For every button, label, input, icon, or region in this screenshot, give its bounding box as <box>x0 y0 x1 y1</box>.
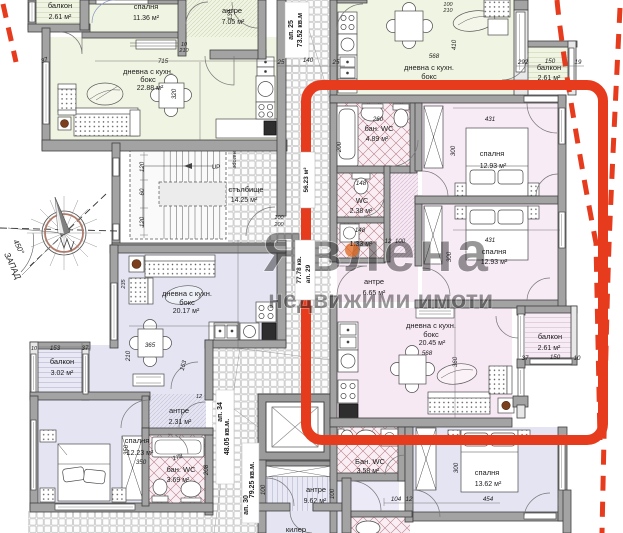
svg-text:56.23 м²: 56.23 м² <box>303 167 310 193</box>
svg-text:2.38 м²: 2.38 м² <box>350 208 373 215</box>
svg-text:148: 148 <box>355 227 366 234</box>
svg-text:11.36 м²: 11.36 м² <box>133 15 160 22</box>
svg-text:200: 200 <box>336 141 343 153</box>
svg-text:12: 12 <box>385 238 392 245</box>
svg-text:12.93 м²: 12.93 м² <box>480 163 507 170</box>
svg-text:120: 120 <box>139 216 146 227</box>
svg-text:22.88 м²: 22.88 м² <box>137 85 164 92</box>
svg-text:350: 350 <box>136 459 147 466</box>
svg-text:2.61 м²: 2.61 м² <box>538 345 561 352</box>
svg-text:спалня: спалня <box>125 436 150 445</box>
svg-text:антре: антре <box>169 406 189 415</box>
svg-text:3.02 м²: 3.02 м² <box>51 370 74 377</box>
svg-text:WC: WC <box>356 196 369 205</box>
svg-text:300: 300 <box>453 462 460 473</box>
svg-text:2.61 м²: 2.61 м² <box>538 75 561 82</box>
svg-text:3.69 м²: 3.69 м² <box>167 477 190 484</box>
svg-text:10: 10 <box>31 346 38 352</box>
svg-text:210: 210 <box>442 8 453 14</box>
svg-text:210: 210 <box>125 350 132 362</box>
svg-text:бокс: бокс <box>179 298 195 307</box>
svg-text:спалня: спалня <box>475 468 500 477</box>
svg-text:360: 360 <box>452 356 459 367</box>
svg-text:365: 365 <box>145 342 156 349</box>
svg-text:2.31 м²: 2.31 м² <box>169 419 192 426</box>
svg-text:100: 100 <box>329 488 336 499</box>
svg-text:431: 431 <box>485 116 495 123</box>
svg-text:568: 568 <box>429 53 440 60</box>
svg-text:25: 25 <box>277 59 285 66</box>
svg-text:100: 100 <box>395 238 406 245</box>
svg-text:73.52 кв.м: 73.52 кв.м <box>297 13 304 47</box>
svg-text:37: 37 <box>82 345 89 352</box>
svg-text:153: 153 <box>50 345 61 352</box>
svg-text:37: 37 <box>522 355 529 362</box>
svg-text:13.62 м²: 13.62 м² <box>475 481 502 488</box>
svg-text:2.61 м²: 2.61 м² <box>49 14 72 21</box>
svg-text:дневна с кухн.: дневна с кухн. <box>162 289 212 298</box>
svg-text:12: 12 <box>406 496 413 503</box>
svg-text:ап. 25: ап. 25 <box>288 20 295 40</box>
svg-text:260: 260 <box>372 116 384 123</box>
svg-text:10: 10 <box>574 355 581 362</box>
svg-text:19: 19 <box>575 59 582 66</box>
svg-text:9.62 м²: 9.62 м² <box>304 498 327 505</box>
svg-text:300: 300 <box>446 251 453 262</box>
svg-text:454: 454 <box>483 496 494 503</box>
svg-text:20.45 м²: 20.45 м² <box>419 340 446 347</box>
svg-text:спалня: спалня <box>482 247 507 256</box>
svg-text:150: 150 <box>550 354 561 361</box>
svg-text:14.25 м²: 14.25 м² <box>231 197 258 204</box>
svg-text:48.05 кв.м.: 48.05 кв.м. <box>224 419 231 455</box>
svg-text:104: 104 <box>391 496 402 503</box>
svg-text:100: 100 <box>260 484 267 495</box>
svg-text:715: 715 <box>158 58 169 65</box>
svg-text:350: 350 <box>123 444 130 455</box>
svg-text:25: 25 <box>332 59 340 66</box>
svg-text:410: 410 <box>451 39 458 50</box>
svg-text:бан. WC: бан. WC <box>166 465 196 474</box>
svg-text:балкон: балкон <box>538 332 562 341</box>
svg-text:568: 568 <box>422 350 433 357</box>
svg-text:1.33 м²: 1.33 м² <box>350 241 373 248</box>
svg-text:Бан. WC: Бан. WC <box>355 457 385 466</box>
svg-text:79.25 кв.м.: 79.25 кв.м. <box>249 462 256 498</box>
svg-text:3.58 м²: 3.58 м² <box>357 468 380 475</box>
svg-text:20.17 м²: 20.17 м² <box>173 308 200 315</box>
svg-text:148: 148 <box>356 180 367 187</box>
svg-text:4.89 м²: 4.89 м² <box>366 136 389 143</box>
svg-text:балкон: балкон <box>50 357 74 366</box>
svg-text:антре: антре <box>306 485 326 494</box>
svg-text:120: 120 <box>139 161 146 172</box>
svg-text:дневна с кухн.: дневна с кухн. <box>406 321 456 330</box>
svg-text:дневна с кухн.: дневна с кухн. <box>404 63 454 72</box>
svg-text:12.23 м²: 12.23 м² <box>127 450 154 457</box>
svg-text:бокс: бокс <box>140 75 156 84</box>
svg-text:стълбище: стълбище <box>229 185 264 194</box>
svg-text:UP: UP <box>212 165 220 171</box>
svg-text:килер: килер <box>286 525 306 533</box>
svg-text:200: 200 <box>273 222 284 228</box>
svg-text:6.65 м²: 6.65 м² <box>363 290 386 297</box>
svg-text:140: 140 <box>303 57 314 64</box>
svg-text:бокс: бокс <box>421 72 437 81</box>
svg-text:12.93 м²: 12.93 м² <box>481 259 508 266</box>
svg-text:бан. WC: бан. WC <box>364 124 394 133</box>
svg-text:спалня: спалня <box>480 149 505 158</box>
svg-text:бокс: бокс <box>423 330 439 339</box>
svg-text:130: 130 <box>227 9 234 20</box>
svg-text:ап. 34: ап. 34 <box>217 402 224 422</box>
svg-text:235: 235 <box>121 278 127 289</box>
svg-text:балкон: балкон <box>48 1 72 10</box>
svg-text:431: 431 <box>485 237 495 244</box>
svg-text:60: 60 <box>139 188 146 195</box>
svg-text:антре: антре <box>364 277 384 286</box>
svg-text:нагоре: нагоре <box>231 151 237 168</box>
svg-text:77.78 кв.: 77.78 кв. <box>296 256 303 283</box>
svg-text:210: 210 <box>178 48 189 54</box>
svg-text:300: 300 <box>450 145 457 156</box>
svg-text:150: 150 <box>545 58 556 65</box>
svg-text:208: 208 <box>203 464 210 476</box>
svg-text:ап. 29: ап. 29 <box>305 264 312 283</box>
svg-text:292: 292 <box>517 59 529 66</box>
svg-text:спалня: спалня <box>134 2 159 11</box>
svg-text:320: 320 <box>171 88 178 99</box>
svg-text:12: 12 <box>196 394 202 400</box>
svg-text:100: 100 <box>274 215 284 221</box>
